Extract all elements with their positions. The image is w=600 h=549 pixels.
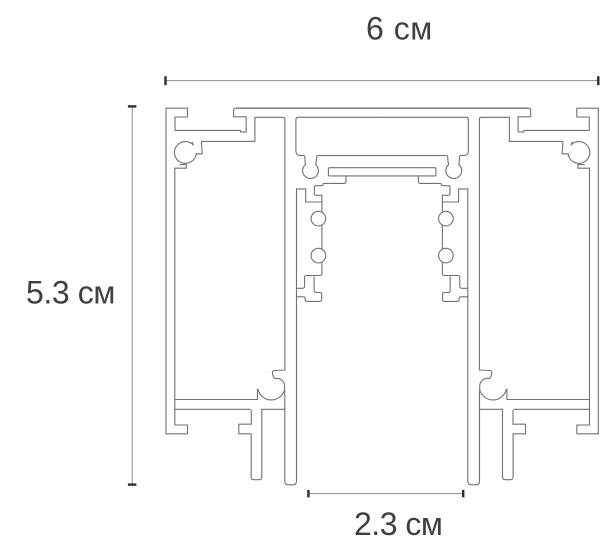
svg-text:5.3 см: 5.3 см — [26, 274, 115, 310]
svg-text:2.3 см: 2.3 см — [354, 506, 442, 542]
svg-text:6 см: 6 см — [366, 11, 433, 47]
